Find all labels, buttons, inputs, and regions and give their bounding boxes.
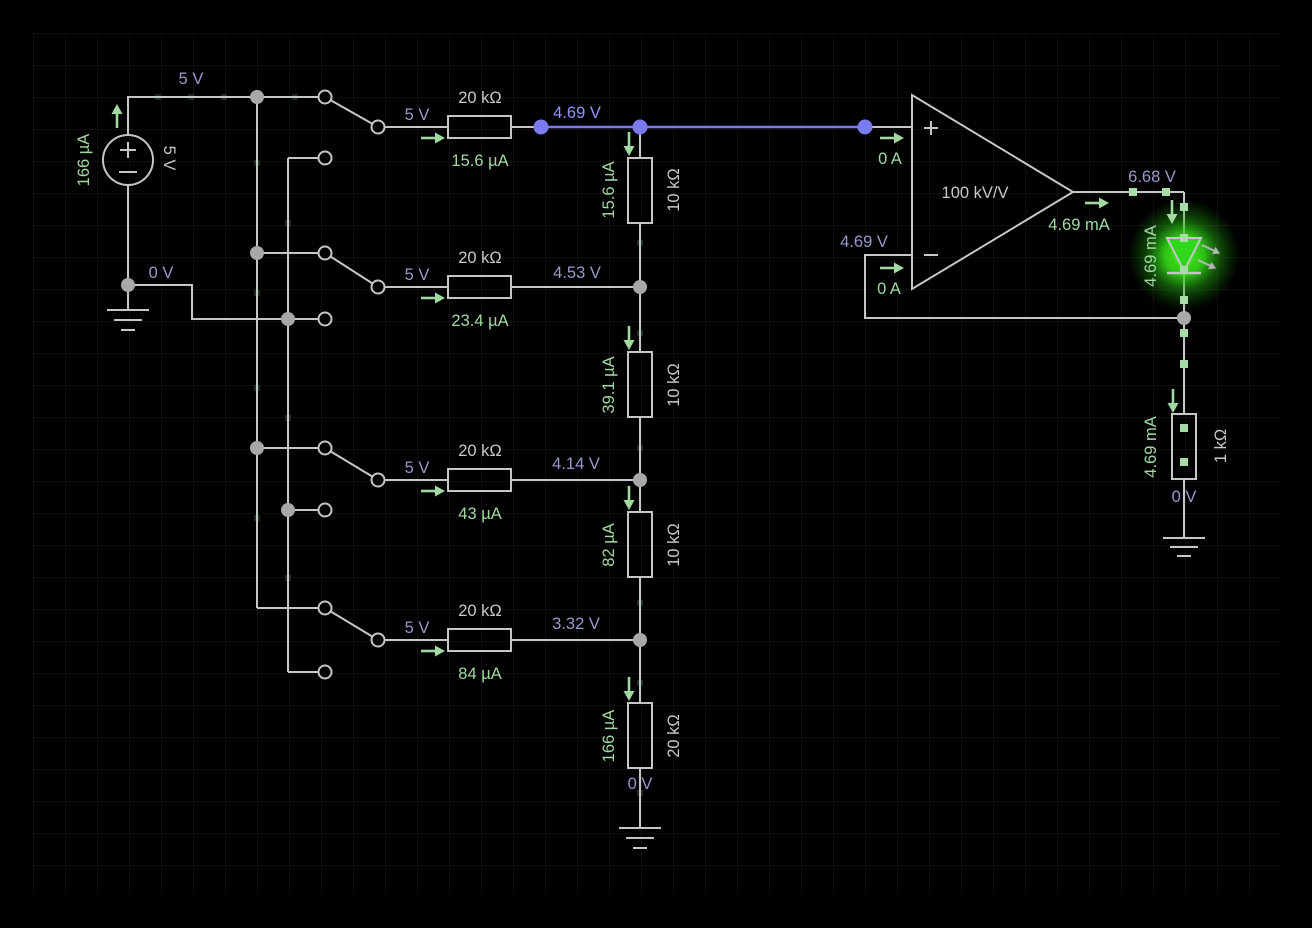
resistor-value-label: 20 kΩ bbox=[458, 442, 502, 460]
grid bbox=[33, 33, 1279, 894]
node-voltage-label: 5 V bbox=[179, 70, 204, 88]
row-input-voltage: 5 V bbox=[405, 459, 430, 477]
resistor-current-label: 166 µA bbox=[600, 710, 618, 763]
source-current-label: 166 µA bbox=[75, 134, 93, 187]
row-input-voltage: 5 V bbox=[405, 106, 430, 124]
resistor-value-label: 20 kΩ bbox=[458, 249, 502, 267]
resistor-current-label: 43 µA bbox=[458, 505, 501, 523]
resistor-current-label: 39.1 µA bbox=[600, 356, 618, 413]
resistor-value-label: 20 kΩ bbox=[458, 602, 502, 620]
node-voltage-label: 0 V bbox=[628, 775, 653, 793]
resistor-value-label: 10 kΩ bbox=[665, 168, 683, 212]
resistor-current-label: 82 µA bbox=[600, 523, 618, 566]
node-voltage-label: 4.53 V bbox=[553, 264, 601, 282]
resistor-current-label: 84 µA bbox=[458, 665, 501, 683]
output-current-label: 4.69 mA bbox=[1048, 216, 1109, 234]
resistor-value-label: 10 kΩ bbox=[665, 523, 683, 567]
node-voltage-label: 4.69 V bbox=[840, 233, 888, 251]
resistor-current-label: 15.6 µA bbox=[451, 152, 508, 170]
opamp-gain-label: 100 kV/V bbox=[942, 184, 1009, 202]
input-current-label: 0 A bbox=[877, 280, 901, 298]
resistor-value-label: 10 kΩ bbox=[665, 363, 683, 407]
node-voltage-label: 0 V bbox=[149, 264, 174, 282]
resistor-value-label: 20 kΩ bbox=[458, 89, 502, 107]
resistor-value-label: 20 kΩ bbox=[665, 714, 683, 758]
resistor-current-label: 4.69 mA bbox=[1142, 416, 1160, 477]
row-input-voltage: 5 V bbox=[405, 266, 430, 284]
led-current-label: 4.69 mA bbox=[1142, 225, 1160, 286]
circuit-canvas[interactable]: 5 V 0 V 166 µA 5 V 5 V 20 kΩ 15.6 µA 4.6… bbox=[0, 0, 1312, 928]
resistor-current-label: 15.6 µA bbox=[600, 161, 618, 218]
node-voltage-label: 4.14 V bbox=[552, 455, 600, 473]
node-voltage-label: 0 V bbox=[1172, 488, 1197, 506]
node-voltage-label: 6.68 V bbox=[1128, 168, 1176, 186]
source-value-label: 5 V bbox=[160, 146, 178, 171]
node-voltage-label-selected: 4.69 V bbox=[553, 104, 601, 122]
input-current-label: 0 A bbox=[878, 150, 902, 168]
node-voltage-label: 3.32 V bbox=[552, 615, 600, 633]
row-input-voltage: 5 V bbox=[405, 619, 430, 637]
resistor-value-label: 1 kΩ bbox=[1212, 429, 1230, 463]
schematic[interactable]: 5 V 0 V 166 µA 5 V 5 V 20 kΩ 15.6 µA 4.6… bbox=[0, 0, 1312, 928]
resistor-current-label: 23.4 µA bbox=[451, 312, 508, 330]
